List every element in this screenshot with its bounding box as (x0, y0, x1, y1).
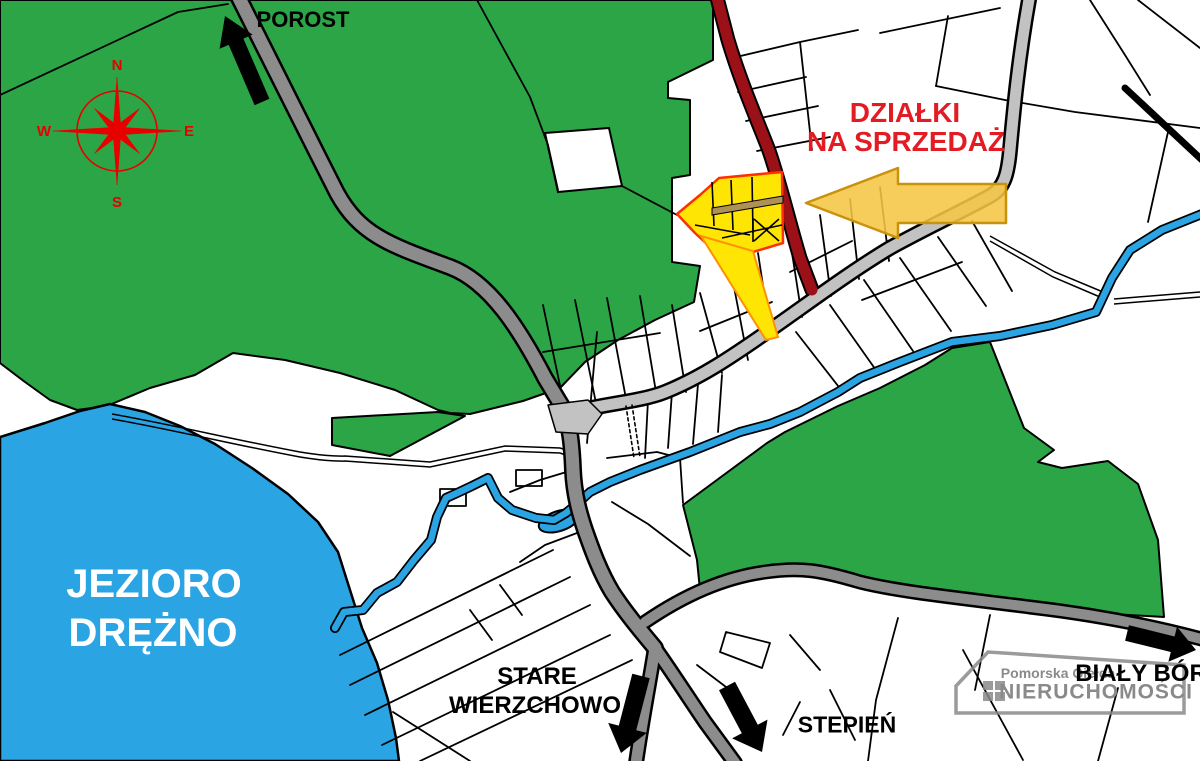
label-jezioro-line1: JEZIORO (66, 564, 242, 604)
label-stare-line2: WIERZCHOWO (449, 694, 621, 718)
label-porost: POROST (257, 9, 350, 31)
label-stare-line1: STARE (497, 665, 577, 689)
label-bialy-bor: BIAŁY BÓR (1075, 662, 1200, 686)
compass-e: E (184, 123, 194, 140)
cadastral-map: N S W E POROST DZIAŁKI NA SPRZEDAŻ JEZIO… (0, 0, 1200, 761)
compass-s: S (112, 194, 122, 211)
compass-n: N (112, 57, 123, 74)
label-jezioro-line2: DRĘŻNO (69, 613, 238, 653)
compass-w: W (37, 123, 52, 140)
label-dzialki-line2: NA SPRZEDAŻ (807, 128, 1005, 156)
label-dzialki-line1: DZIAŁKI (850, 99, 960, 127)
label-stepien: STEPIEŃ (798, 714, 896, 737)
